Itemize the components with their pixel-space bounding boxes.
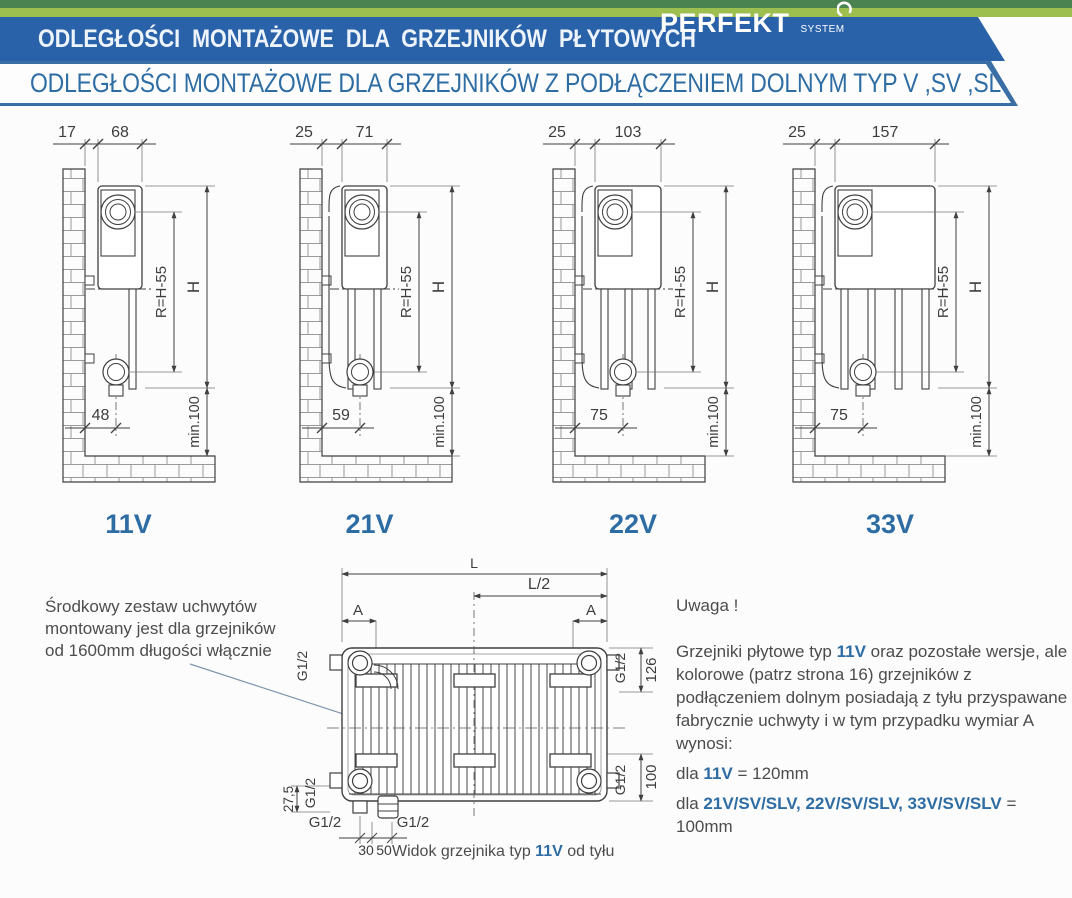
dim-bottom-offset: 59 (332, 407, 350, 424)
dim-wall-gap: 17 (58, 126, 76, 141)
rear-dim-a-left: A (353, 602, 363, 619)
rule1-value: = 120mm (733, 764, 809, 783)
notes-panel: Uwaga ! Grzejniki płytowe typ 11V oraz p… (676, 596, 1068, 838)
dim-bottom-offset: 48 (92, 407, 110, 424)
type-label: 33V (866, 509, 914, 539)
para-type: 11V (837, 642, 866, 661)
dim-floor-clearance: min.100 (432, 396, 448, 448)
caption-type: 11V (535, 843, 563, 860)
rear-dim-length: L (470, 556, 478, 571)
rear-dim-a-right: A (586, 602, 596, 619)
top-strip-dark-green (0, 0, 1072, 8)
dim-bottom-offset: 75 (830, 407, 848, 424)
rear-dim-30: 30 (358, 842, 374, 858)
brand-logo-subtext: SYSTEM (801, 24, 845, 35)
header-banner: ODLEGŁOŚCI MONTAŻOWE DLA GRZEJNIKÓW PŁYT… (0, 17, 1020, 61)
dim-height: H (703, 281, 722, 293)
dim-floor-clearance: min.100 (969, 396, 985, 448)
dim-height: H (184, 281, 203, 293)
dim-bottom-offset: 75 (590, 407, 608, 424)
rear-thread-top-right: G1/2 (612, 653, 628, 684)
rule2-prefix: dla (676, 794, 703, 813)
type-label: 21V (345, 509, 393, 539)
dim-depth: 157 (872, 126, 899, 141)
logo-swoosh-icon (837, 1, 855, 19)
sub-header-band: ODLEGŁOŚCI MONTAŻOWE DLA GRZEJNIKÓW Z PO… (0, 61, 1020, 106)
sub-header-inner: ODLEGŁOŚCI MONTAŻOWE DLA GRZEJNIKÓW Z PO… (0, 64, 1012, 103)
type-label: 22V (609, 509, 657, 539)
rear-dim-27-5: 27,5 (283, 786, 296, 812)
brand-logo-text: PERFEKT (660, 8, 790, 39)
dim-depth: 68 (111, 126, 129, 141)
section-diagram-11v: 17 68 48 R=H-55 H min.100 11V (23, 126, 273, 551)
catalog-page: ODLEGŁOŚCI MONTAŻOWE DLA GRZEJNIKÓW PŁYT… (0, 0, 1072, 898)
rear-dim-50: 50 (376, 842, 392, 858)
dim-height: H (429, 281, 448, 293)
dim-floor-clearance: min.100 (187, 396, 203, 448)
warning-title: Uwaga ! (676, 596, 1068, 616)
page-subtitle: ODLEGŁOŚCI MONTAŻOWE DLA GRZEJNIKÓW Z PO… (30, 68, 1015, 99)
dim-radius: R=H-55 (153, 266, 170, 318)
rear-thread-bottom-left: G1/2 (302, 778, 318, 809)
dim-radius: R=H-55 (672, 266, 689, 318)
rear-dim-100: 100 (643, 764, 660, 789)
dim-height: H (966, 281, 985, 293)
brand-logo: PERFEKT SYSTEM (660, 8, 845, 39)
rule-11v: dla 11V = 120mm (676, 762, 1068, 785)
caption-suffix: od tyłu (563, 843, 615, 860)
dim-depth: 103 (615, 126, 642, 141)
rear-dim-half-length: L/2 (528, 576, 550, 593)
type-label: 11V (105, 509, 152, 539)
top-strip-lime (0, 8, 1072, 17)
rear-thread-bottom-right: G1/2 (612, 765, 628, 796)
rear-thread-top-left: G1/2 (294, 651, 310, 682)
dim-radius: R=H-55 (935, 266, 952, 318)
rule1-type: 11V (703, 764, 732, 783)
dim-floor-clearance: min.100 (706, 396, 722, 448)
rule1-prefix: dla (676, 764, 703, 783)
para-prefix: Grzejniki płytowe typ (676, 642, 837, 661)
caption-prefix: Widok grzejnika typ (392, 843, 535, 860)
dim-radius: R=H-55 (398, 266, 415, 318)
rule-other-types: dla 21V/SV/SLV, 22V/SV/SLV, 33V/SV/SLV =… (676, 792, 1068, 838)
rear-thread-conn-left: G1/2 (309, 814, 342, 831)
section-diagram-33v: 25 157 75 R=H-55 H min.100 33V (753, 126, 1018, 551)
dim-wall-gap: 25 (295, 126, 313, 141)
note-paragraph: Grzejniki płytowe typ 11V oraz pozostałe… (676, 640, 1068, 755)
section-diagram-21v: 25 71 59 R=H-55 H min.100 21V (260, 126, 510, 551)
dim-wall-gap: 25 (788, 126, 806, 141)
dim-depth: 71 (356, 126, 374, 141)
rear-thread-conn-right: G1/2 (397, 814, 430, 831)
page-title: ODLEGŁOŚCI MONTAŻOWE DLA GRZEJNIKÓW PŁYT… (38, 25, 696, 54)
dim-wall-gap: 25 (548, 126, 566, 141)
rear-view-caption: Widok grzejnika typ 11V od tyłu (392, 843, 614, 861)
section-diagram-22v: 25 103 75 R=H-55 H min.100 22V (513, 126, 763, 551)
rear-dim-126: 126 (643, 657, 660, 682)
rule2-types: 21V/SV/SLV, 22V/SV/SLV, 33V/SV/SLV (703, 794, 1001, 813)
